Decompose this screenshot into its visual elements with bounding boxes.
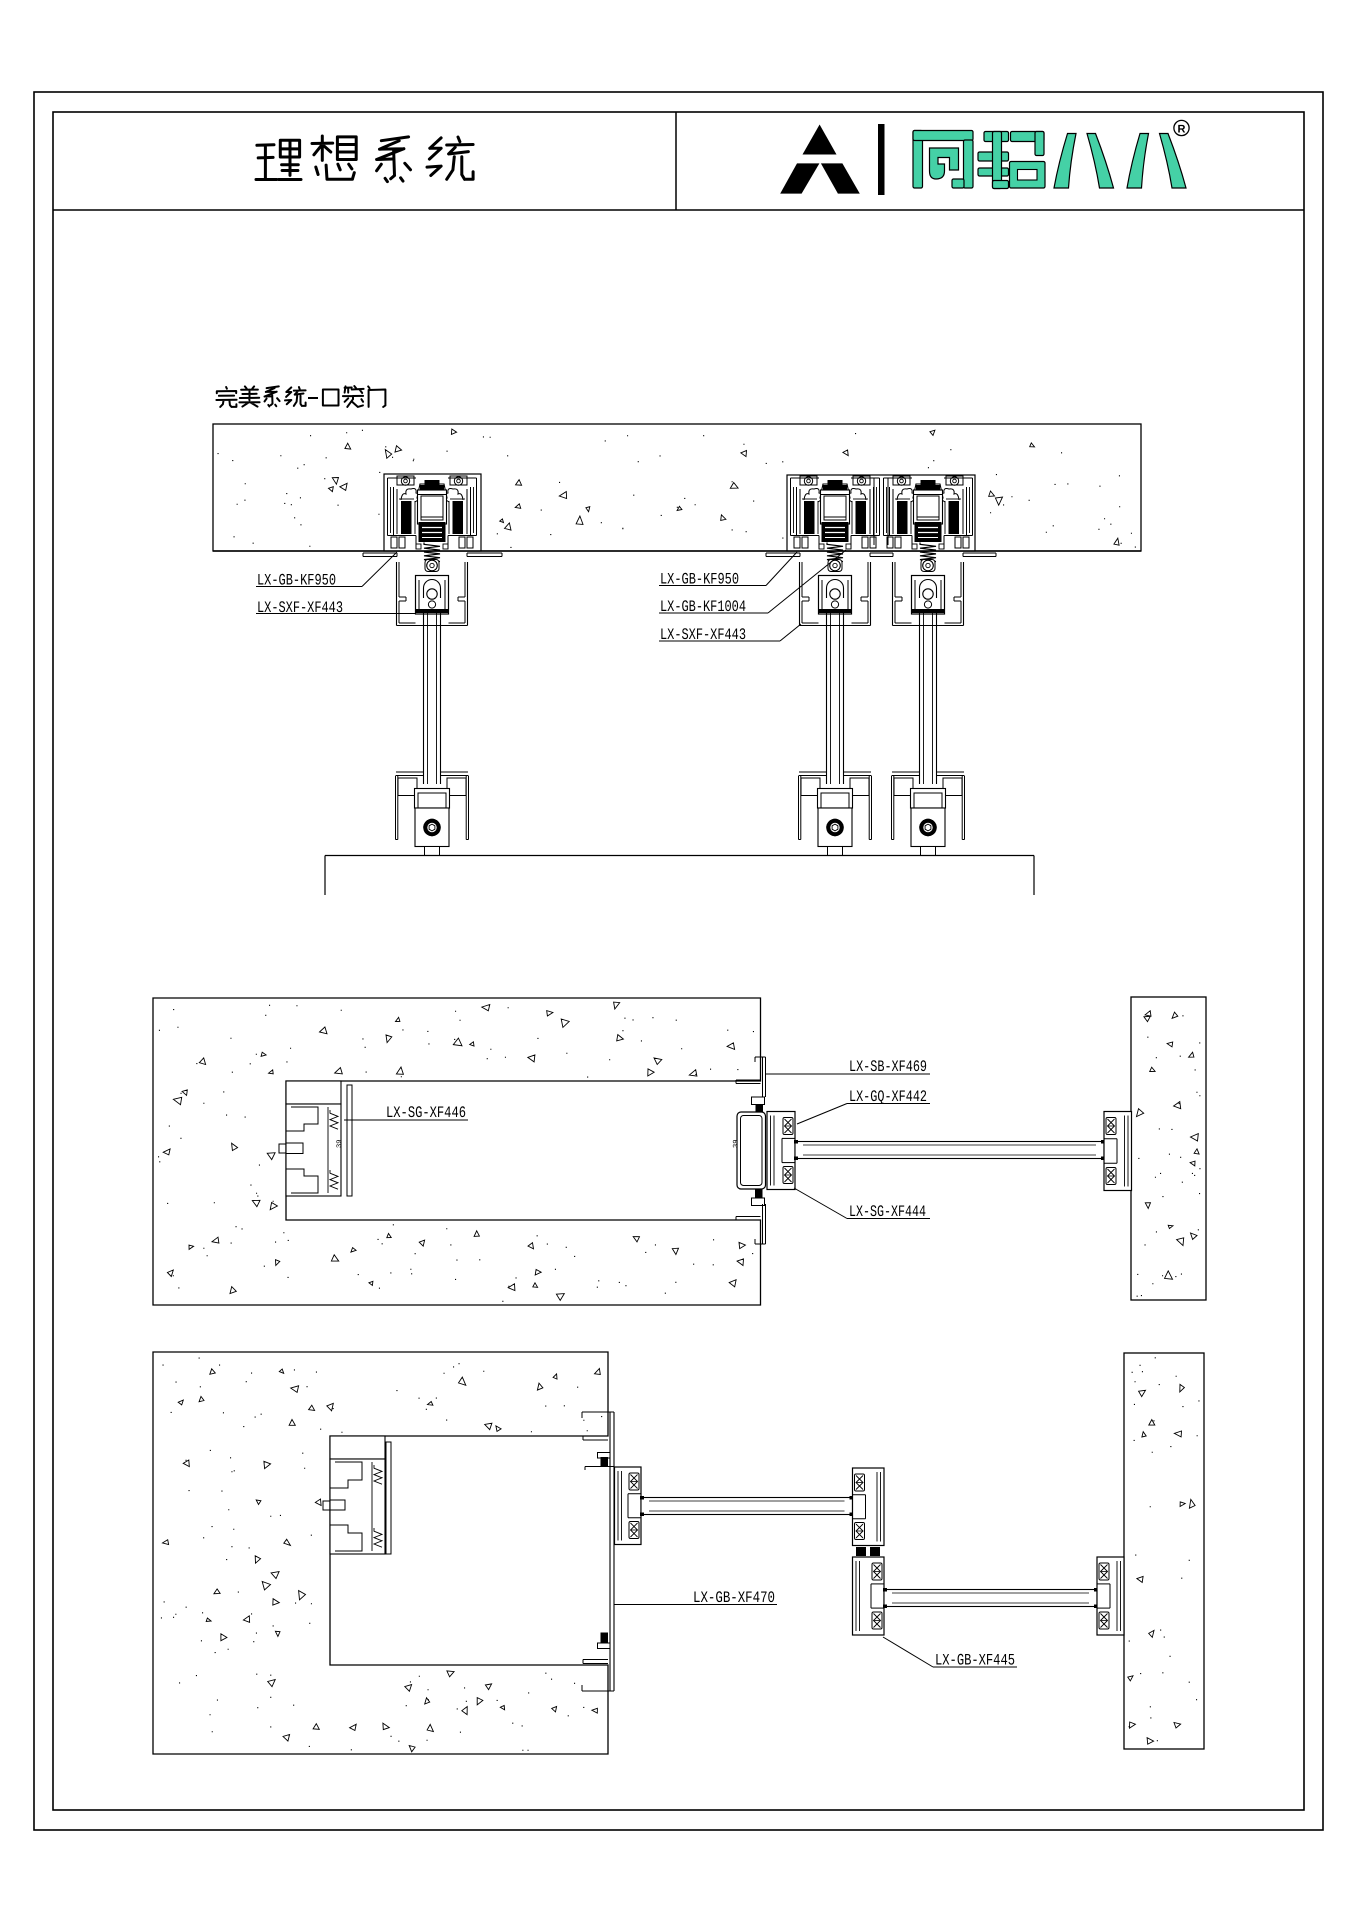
- svg-text:LX-SG-XF446: LX-SG-XF446: [386, 1104, 466, 1122]
- svg-text:39: 39: [336, 1140, 344, 1148]
- svg-text:LX-SXF-XF443: LX-SXF-XF443: [257, 599, 343, 617]
- svg-text:LX-SB-XF469: LX-SB-XF469: [849, 1058, 927, 1076]
- svg-text:R: R: [1178, 123, 1186, 135]
